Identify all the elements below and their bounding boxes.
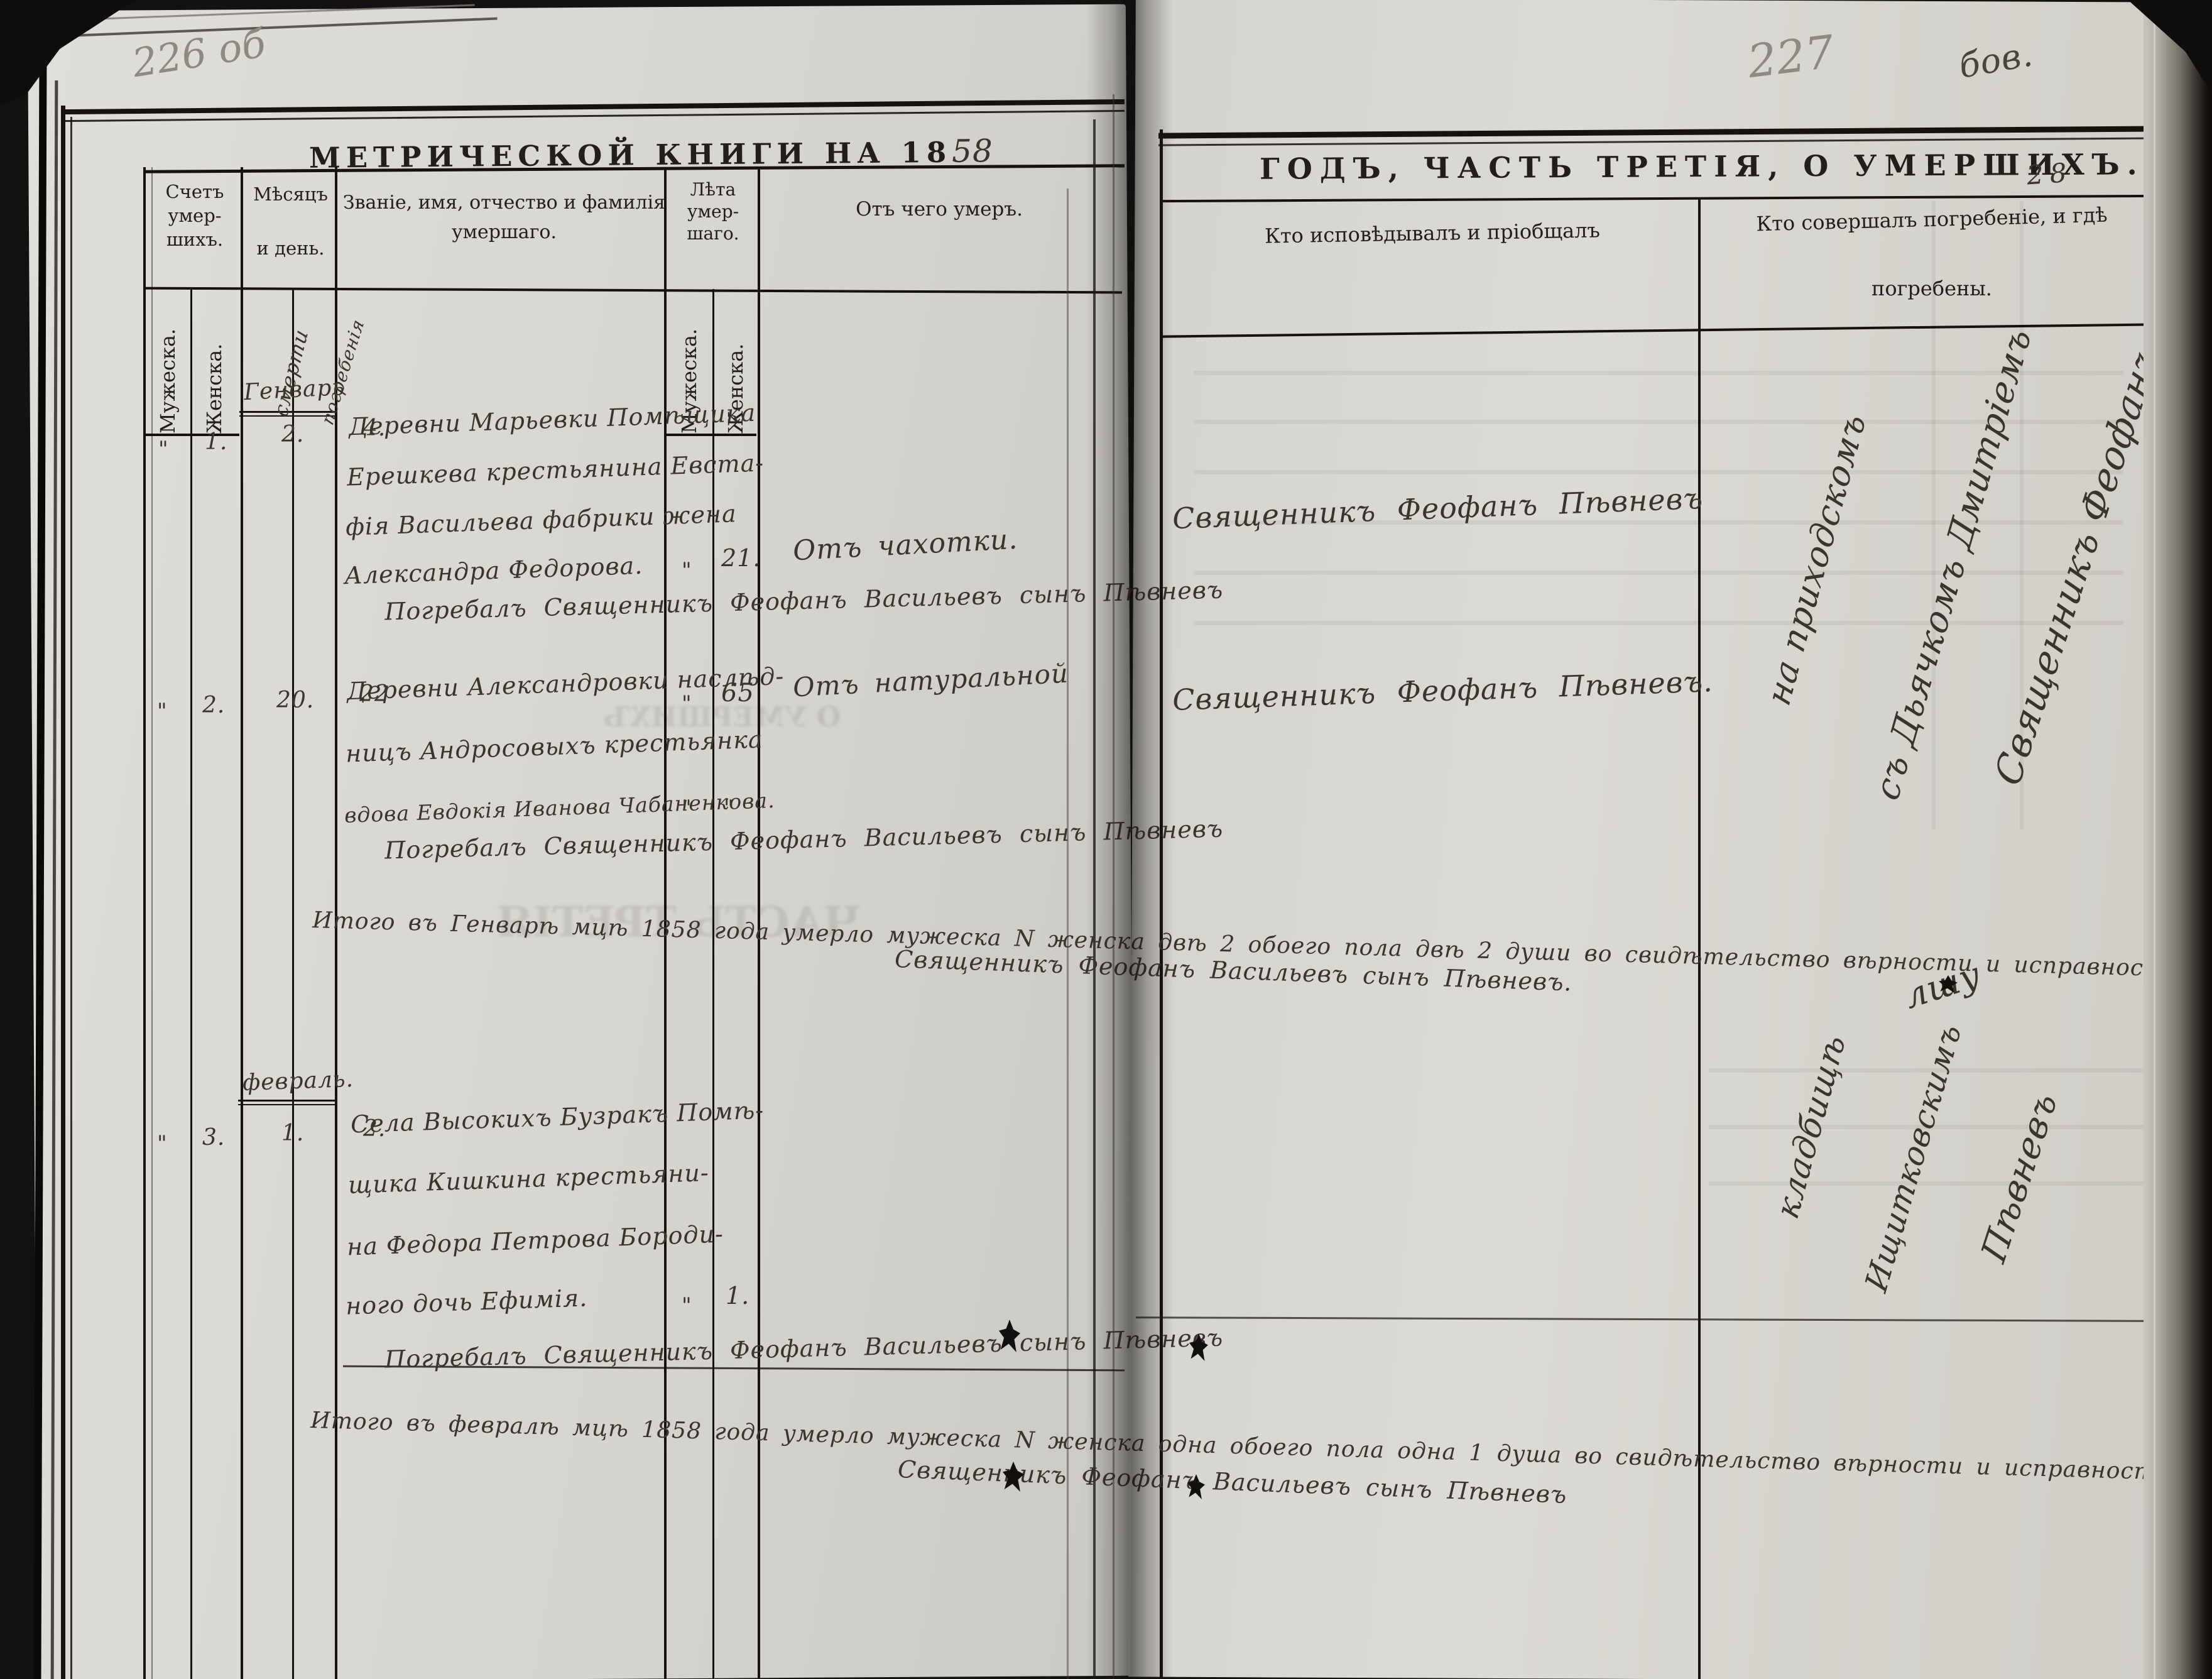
- column-line: [292, 289, 294, 1679]
- col-header-age: умер-: [667, 201, 759, 222]
- ghost-rule: [1709, 1181, 2149, 1186]
- frame-line: [61, 106, 65, 1679]
- month-underline: [238, 1100, 337, 1102]
- page-title-left: МЕТРИЧЕСКОЙ КНИГИ НА 1858: [309, 133, 993, 175]
- ghost-rule: [1194, 571, 2123, 575]
- month-label-january: Генварь: [243, 375, 346, 405]
- record-age-male: ": [682, 1293, 692, 1318]
- col-header-count: Счетъ: [148, 181, 242, 202]
- month-label-february: февраль.: [242, 1066, 354, 1096]
- column-line: [190, 289, 192, 1679]
- record-count-male: ": [158, 437, 169, 462]
- record-age-female: 1.: [726, 1282, 749, 1310]
- col-header-count: шихъ.: [148, 229, 242, 250]
- record-ditto-female: ": [724, 796, 734, 821]
- record-count-male: ": [157, 1131, 168, 1156]
- col-header-name: Званіе, имя, отчество и фамилія: [342, 192, 666, 214]
- month-underline: [238, 1104, 337, 1105]
- record-death-day: 20.: [276, 687, 314, 713]
- subcol-count-female: Женска.: [202, 344, 226, 434]
- record-ditto-male: ": [682, 796, 692, 821]
- record-count-female: 1.: [205, 429, 227, 455]
- page-edge-highlight: [2154, 0, 2155, 1679]
- record-count-female: 2.: [202, 692, 225, 718]
- record-age-male: ": [682, 558, 692, 583]
- col-header-cause: Отъ чего умеръ.: [760, 198, 1118, 221]
- page-number-hand: 28: [2025, 156, 2074, 190]
- col-header-count: умер-: [148, 205, 242, 226]
- ghost-rule: [1194, 621, 2123, 625]
- record-death-day: 1.: [281, 1120, 304, 1146]
- subcol-count-male: Мужеска.: [156, 329, 180, 434]
- record-age-male: ": [682, 691, 692, 716]
- page-title-printed: МЕТРИЧЕСКОЙ КНИГИ НА 18: [309, 136, 952, 175]
- record-death-day: 2.: [281, 422, 304, 447]
- subheader-underline: [666, 434, 756, 436]
- record-age-female: 65: [721, 679, 755, 708]
- frame-line: [70, 117, 72, 1679]
- book-spine-shadow: [1086, 0, 1174, 1679]
- column-line: [143, 167, 146, 1679]
- page-title-year-hand: 58: [952, 133, 993, 170]
- col-header-name: умершаго.: [342, 221, 666, 243]
- col-header-burial: погребены.: [1715, 276, 2149, 300]
- ghost-rule: [1194, 371, 2123, 375]
- record-age-female: 21.: [721, 544, 761, 572]
- col-header-date: Мѣсяцъ: [245, 183, 336, 205]
- col-header-age: шаго.: [667, 223, 759, 244]
- column-line: [241, 167, 243, 1679]
- column-line: [712, 289, 714, 1679]
- page-title-right: ГОДЪ, ЧАСТЬ ТРЕТІЯ, О УМЕРШИХЪ.: [1260, 147, 2145, 185]
- right-page: [1128, 0, 2166, 1679]
- record-count-male: ": [157, 699, 168, 724]
- folio-number-right: 227: [1745, 25, 1837, 88]
- record-count-female: 3.: [202, 1125, 225, 1151]
- col-header-age: Лѣта: [667, 179, 759, 200]
- metric-book-scan: ЧАСТЬ ТРЕТІЯ О УМЕРШИХЪ 226 об МЕТРИЧЕСК…: [0, 0, 2212, 1679]
- column-line: [151, 167, 153, 1679]
- col-header-date: и день.: [245, 238, 336, 259]
